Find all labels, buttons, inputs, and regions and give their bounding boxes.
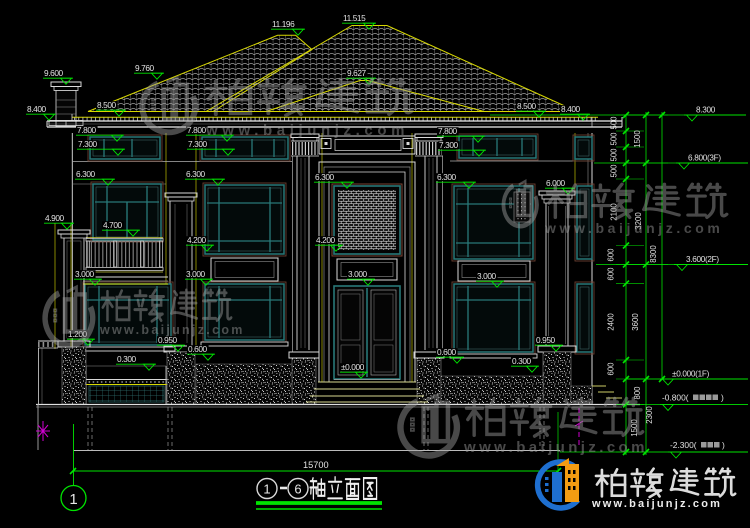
svg-text:6.800(3F): 6.800(3F) <box>688 154 721 163</box>
svg-text:6: 6 <box>294 482 301 497</box>
svg-text:500: 500 <box>610 164 619 178</box>
svg-text:4.700: 4.700 <box>103 220 123 230</box>
svg-text:2400: 2400 <box>607 313 616 331</box>
svg-text:11.196: 11.196 <box>272 19 295 29</box>
svg-text:6.300: 6.300 <box>437 172 457 182</box>
svg-text:4.200: 4.200 <box>187 235 207 245</box>
svg-text:-2.300(: -2.300( <box>670 440 697 450</box>
svg-text:4.200: 4.200 <box>316 235 336 245</box>
svg-text:7.800: 7.800 <box>77 125 97 135</box>
svg-text:0.300: 0.300 <box>117 354 137 364</box>
svg-text:www.baijunjz.com: www.baijunjz.com <box>99 323 245 337</box>
svg-text:2300: 2300 <box>645 406 654 424</box>
svg-text:8.400: 8.400 <box>561 104 581 114</box>
svg-text:8.400: 8.400 <box>27 104 47 114</box>
svg-text:www.baijunjz.com: www.baijunjz.com <box>544 220 723 236</box>
svg-text:600: 600 <box>607 362 616 376</box>
svg-text:www.baijunjz.com: www.baijunjz.com <box>463 439 648 456</box>
svg-text:500: 500 <box>610 148 619 162</box>
svg-text:0.300: 0.300 <box>512 356 532 366</box>
svg-text:11.515: 11.515 <box>343 13 366 23</box>
svg-text:3.000: 3.000 <box>75 269 95 279</box>
svg-text:8300: 8300 <box>649 245 658 263</box>
svg-text:15700: 15700 <box>303 460 329 470</box>
svg-text:1: 1 <box>263 482 270 497</box>
svg-text:1500: 1500 <box>633 130 642 148</box>
svg-text:7.300: 7.300 <box>188 139 208 149</box>
svg-text:9.760: 9.760 <box>135 63 155 73</box>
svg-text:0.950: 0.950 <box>536 335 556 345</box>
svg-text:9.627: 9.627 <box>347 68 367 78</box>
svg-text:7.300: 7.300 <box>439 140 459 150</box>
svg-text:±0.000: ±0.000 <box>341 362 365 372</box>
svg-text:7.800: 7.800 <box>438 126 458 136</box>
svg-text:8.300: 8.300 <box>696 106 716 115</box>
svg-text:600: 600 <box>607 267 616 281</box>
svg-text:3600: 3600 <box>631 313 640 331</box>
svg-text:1: 1 <box>69 491 77 508</box>
svg-text:9.600: 9.600 <box>44 68 64 78</box>
svg-text:0.600: 0.600 <box>437 347 457 357</box>
svg-text:8.500: 8.500 <box>517 101 537 111</box>
svg-text:www.baijunjz.com: www.baijunjz.com <box>591 498 722 510</box>
svg-text:3.000: 3.000 <box>348 269 368 279</box>
svg-text:500: 500 <box>610 132 619 146</box>
svg-text:6.300: 6.300 <box>186 169 206 179</box>
svg-text:7.300: 7.300 <box>78 139 98 149</box>
svg-text:): ) <box>721 393 724 403</box>
svg-text:3.000: 3.000 <box>477 271 497 281</box>
svg-text:8.500: 8.500 <box>97 100 117 110</box>
svg-text:600: 600 <box>607 248 616 262</box>
svg-text:±0.000(1F): ±0.000(1F) <box>672 370 710 379</box>
svg-text:6.300: 6.300 <box>76 169 96 179</box>
svg-text:3.000: 3.000 <box>186 269 206 279</box>
svg-text:3.600(2F): 3.600(2F) <box>686 255 719 264</box>
svg-text:6.300: 6.300 <box>315 172 335 182</box>
svg-text:500: 500 <box>610 116 619 130</box>
svg-text:www.baijunjz.com: www.baijunjz.com <box>205 122 409 139</box>
svg-text:-0.800(: -0.800( <box>662 393 689 403</box>
svg-text:0.600: 0.600 <box>188 344 208 354</box>
svg-text:): ) <box>722 440 725 450</box>
svg-text:4.900: 4.900 <box>45 213 65 223</box>
